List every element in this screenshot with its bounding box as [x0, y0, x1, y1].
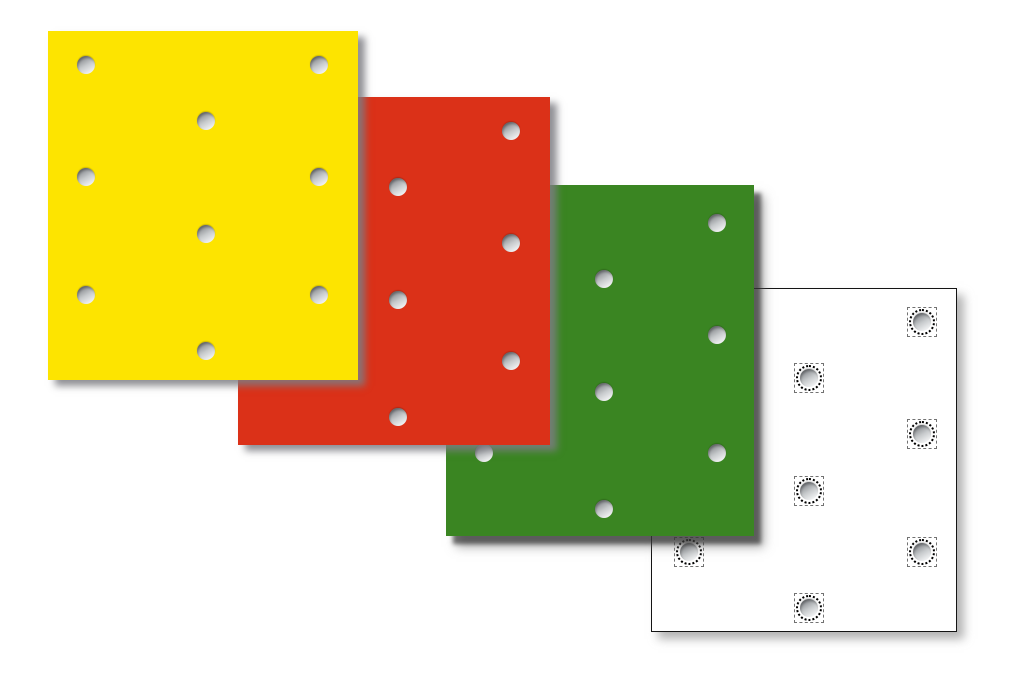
- yellow-sheet-hole: [77, 286, 95, 304]
- yellow-sheet: [48, 31, 358, 380]
- red-sheet-hole: [502, 122, 520, 140]
- white-sheet-hole: [913, 425, 931, 443]
- yellow-sheet-hole: [197, 112, 215, 130]
- green-sheet-hole: [708, 326, 726, 344]
- red-sheet-hole: [502, 352, 520, 370]
- green-sheet-hole: [475, 444, 493, 462]
- white-sheet-hole: [913, 543, 931, 561]
- green-sheet-hole: [595, 383, 613, 401]
- yellow-sheet-hole: [197, 342, 215, 360]
- yellow-sheet-hole: [310, 168, 328, 186]
- green-sheet-hole: [595, 270, 613, 288]
- yellow-sheet-hole: [77, 168, 95, 186]
- yellow-sheet-hole: [310, 56, 328, 74]
- white-sheet-hole: [800, 369, 818, 387]
- red-sheet-hole: [389, 408, 407, 426]
- red-sheet-hole: [389, 291, 407, 309]
- yellow-sheet-hole: [77, 56, 95, 74]
- white-sheet-hole: [800, 599, 818, 617]
- yellow-sheet-hole: [310, 286, 328, 304]
- white-sheet-hole: [680, 543, 698, 561]
- yellow-sheet-hole: [197, 225, 215, 243]
- green-sheet-hole: [708, 214, 726, 232]
- red-sheet-hole: [389, 178, 407, 196]
- perforated-sheets-canvas: [0, 0, 1018, 683]
- red-sheet-hole: [502, 234, 520, 252]
- white-sheet-hole: [800, 482, 818, 500]
- green-sheet-hole: [708, 444, 726, 462]
- white-sheet-hole: [913, 313, 931, 331]
- green-sheet-hole: [595, 500, 613, 518]
